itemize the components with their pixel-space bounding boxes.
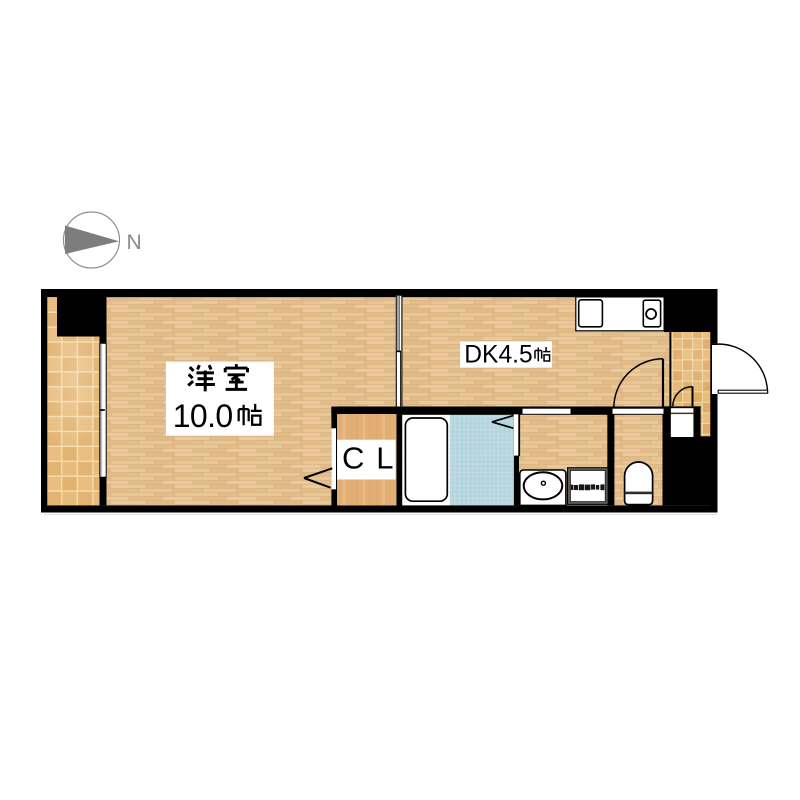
svg-text:L: L xyxy=(376,440,393,475)
svg-text:DK4.5: DK4.5 xyxy=(464,342,532,369)
svg-text:N: N xyxy=(127,231,142,254)
svg-text:10.0: 10.0 xyxy=(173,398,233,434)
svg-text:C: C xyxy=(342,440,364,475)
